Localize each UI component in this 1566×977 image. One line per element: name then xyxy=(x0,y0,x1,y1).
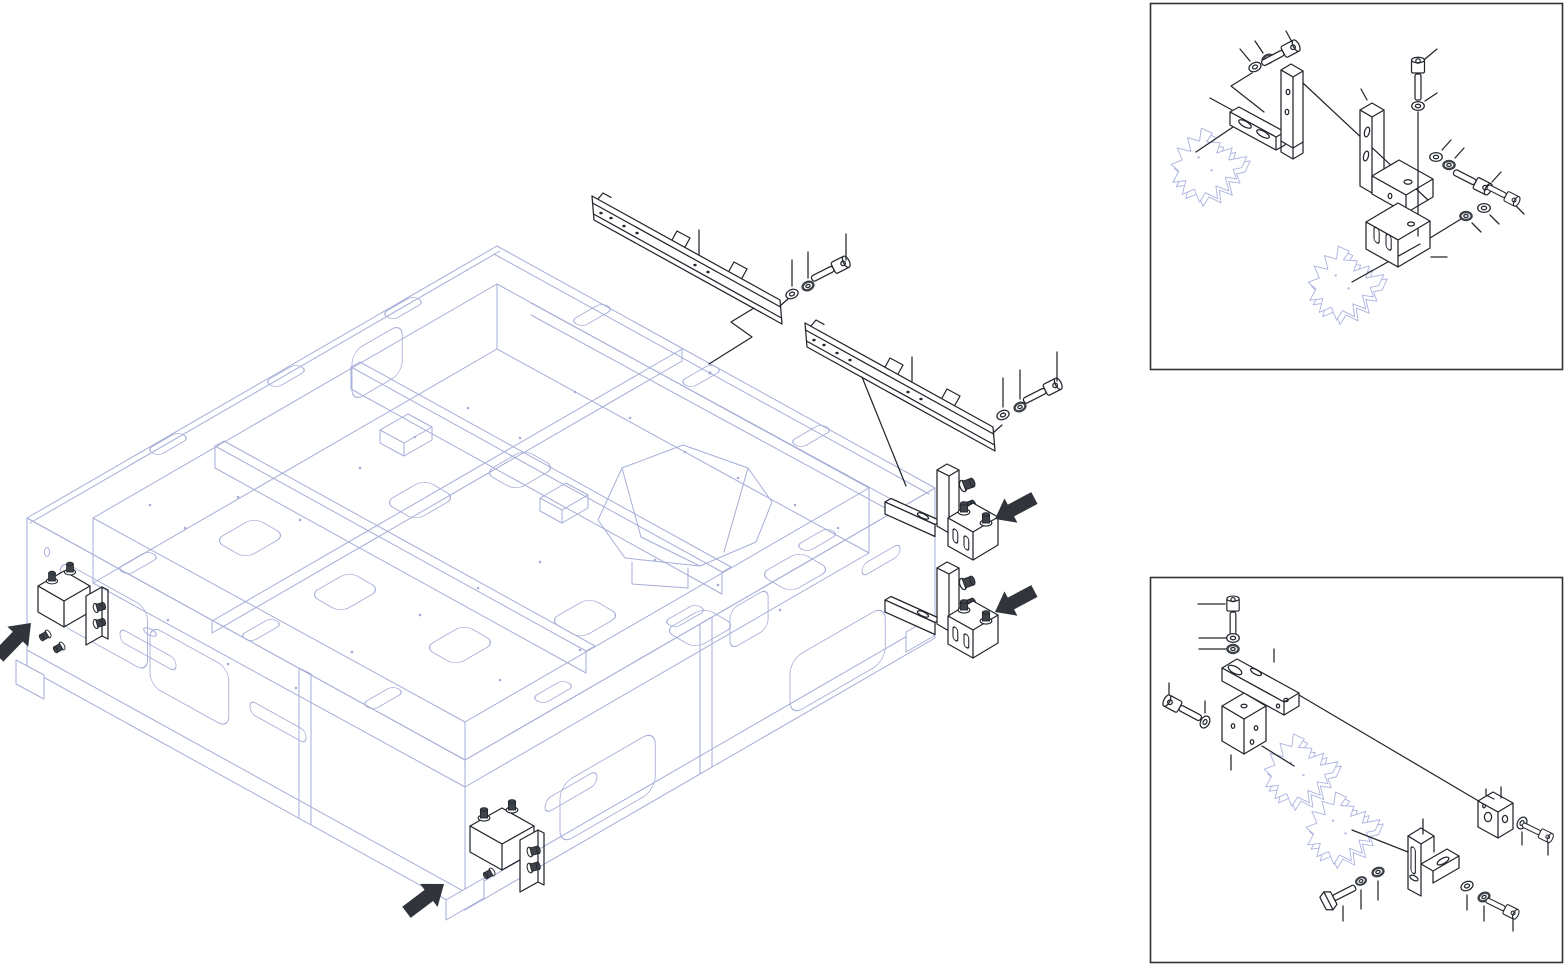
socket-head-screw xyxy=(1227,596,1239,637)
washer xyxy=(1478,204,1491,213)
machine-base-frame xyxy=(16,246,935,920)
clamp-bracket-left-corner xyxy=(38,562,108,654)
diagram-page xyxy=(0,0,1566,977)
socket-head-screw xyxy=(1161,694,1203,724)
washer xyxy=(996,409,1011,422)
frame-floor-cutouts xyxy=(214,450,830,666)
flange-nut xyxy=(1460,212,1471,220)
washer xyxy=(1430,153,1443,162)
clamp-bracket-right-upper xyxy=(885,464,998,560)
direction-arrow-left xyxy=(0,613,41,667)
flange-nut xyxy=(1355,876,1367,886)
flange-nut xyxy=(801,280,814,292)
leader-line xyxy=(1231,73,1264,112)
slotted-spacer-block xyxy=(1210,98,1285,150)
detail-view-bottom-right xyxy=(1151,578,1563,963)
flange-nut xyxy=(1371,866,1384,877)
flange-nut xyxy=(1443,161,1454,169)
ghost-star-plate xyxy=(1308,246,1387,324)
clamp-bracket-front-bottom xyxy=(470,800,544,892)
washer xyxy=(1412,102,1425,111)
ghost-star-plate xyxy=(1264,734,1341,810)
clamp-cube-block xyxy=(1222,693,1266,770)
direction-arrow-right-lower xyxy=(989,579,1041,624)
washer xyxy=(1227,634,1240,643)
socket-head-screw xyxy=(1412,57,1425,100)
hex-bolt xyxy=(1319,878,1360,912)
socket-head-screw xyxy=(1451,166,1494,196)
socket-head-screw xyxy=(1485,182,1521,207)
direction-arrow-right-upper xyxy=(989,486,1041,531)
leader-line xyxy=(709,308,754,364)
frame-feet xyxy=(16,616,934,920)
rail-lower-fasteners xyxy=(996,352,1064,421)
socket-head-screw xyxy=(809,255,852,285)
ghost-star-plate xyxy=(1306,792,1383,868)
rail-upper-fasteners xyxy=(785,234,852,300)
clamp-bracket-right-lower xyxy=(885,562,998,658)
pivot-block xyxy=(1478,787,1513,838)
ghost-star-plate xyxy=(1171,128,1250,206)
mounting-rail-lower xyxy=(805,320,1002,486)
mounting-rail-upper xyxy=(592,193,789,364)
frame-screw-dots xyxy=(149,371,840,689)
washer xyxy=(1247,60,1262,73)
exploded-parts-diagram xyxy=(0,0,1566,977)
socket-head-screw xyxy=(1259,39,1301,69)
washer xyxy=(785,288,800,301)
socket-head-screw xyxy=(1484,895,1520,920)
frame-hopper-block xyxy=(598,445,772,588)
socket-head-screw xyxy=(1520,820,1554,843)
washer xyxy=(1459,879,1474,892)
frame-flange-slots xyxy=(117,296,838,711)
flange-nut xyxy=(1227,645,1238,653)
detail-view-top-right xyxy=(1151,4,1563,370)
